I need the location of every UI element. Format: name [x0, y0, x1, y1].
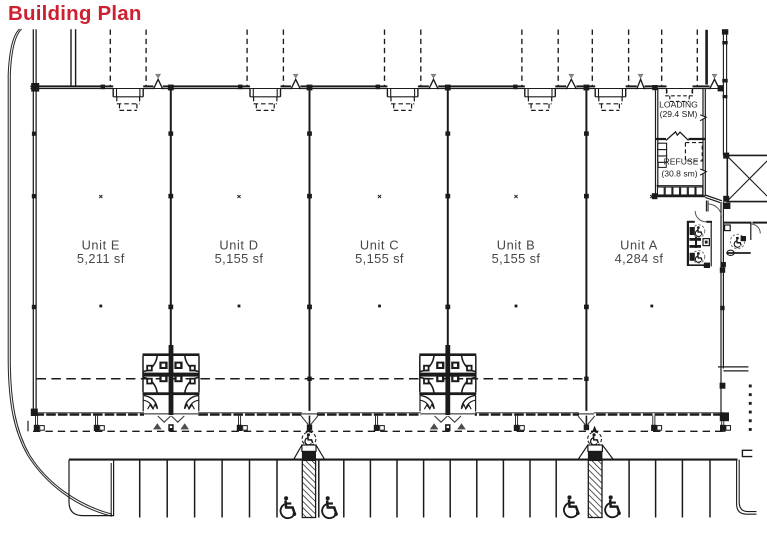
- svg-text:LOADING: LOADING: [659, 99, 698, 109]
- svg-text:(30.8 sm): (30.8 sm): [661, 169, 697, 179]
- svg-text:(29.4 SM): (29.4 SM): [660, 109, 698, 119]
- svg-text:REFUSE: REFUSE: [664, 157, 699, 167]
- svg-text:5,155 sf: 5,155 sf: [215, 251, 264, 266]
- svg-text:5,211 sf: 5,211 sf: [77, 251, 125, 266]
- svg-text:4,284 sf: 4,284 sf: [615, 251, 664, 266]
- svg-text:5,155 sf: 5,155 sf: [492, 251, 541, 266]
- svg-text:Building Plan: Building Plan: [8, 2, 142, 25]
- svg-text:5,155 sf: 5,155 sf: [355, 251, 404, 266]
